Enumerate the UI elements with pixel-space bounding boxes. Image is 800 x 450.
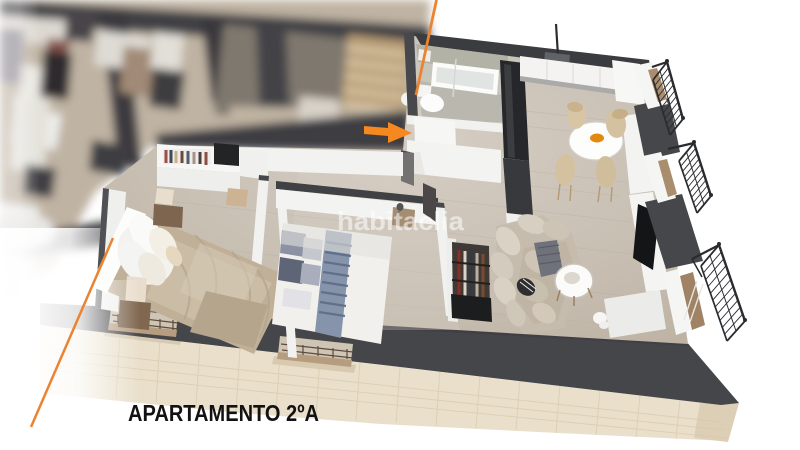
svg-text:APARTAMENTO 2ºA: APARTAMENTO 2ºA xyxy=(128,400,319,426)
svg-text:habitaclia: habitaclia xyxy=(337,206,465,236)
